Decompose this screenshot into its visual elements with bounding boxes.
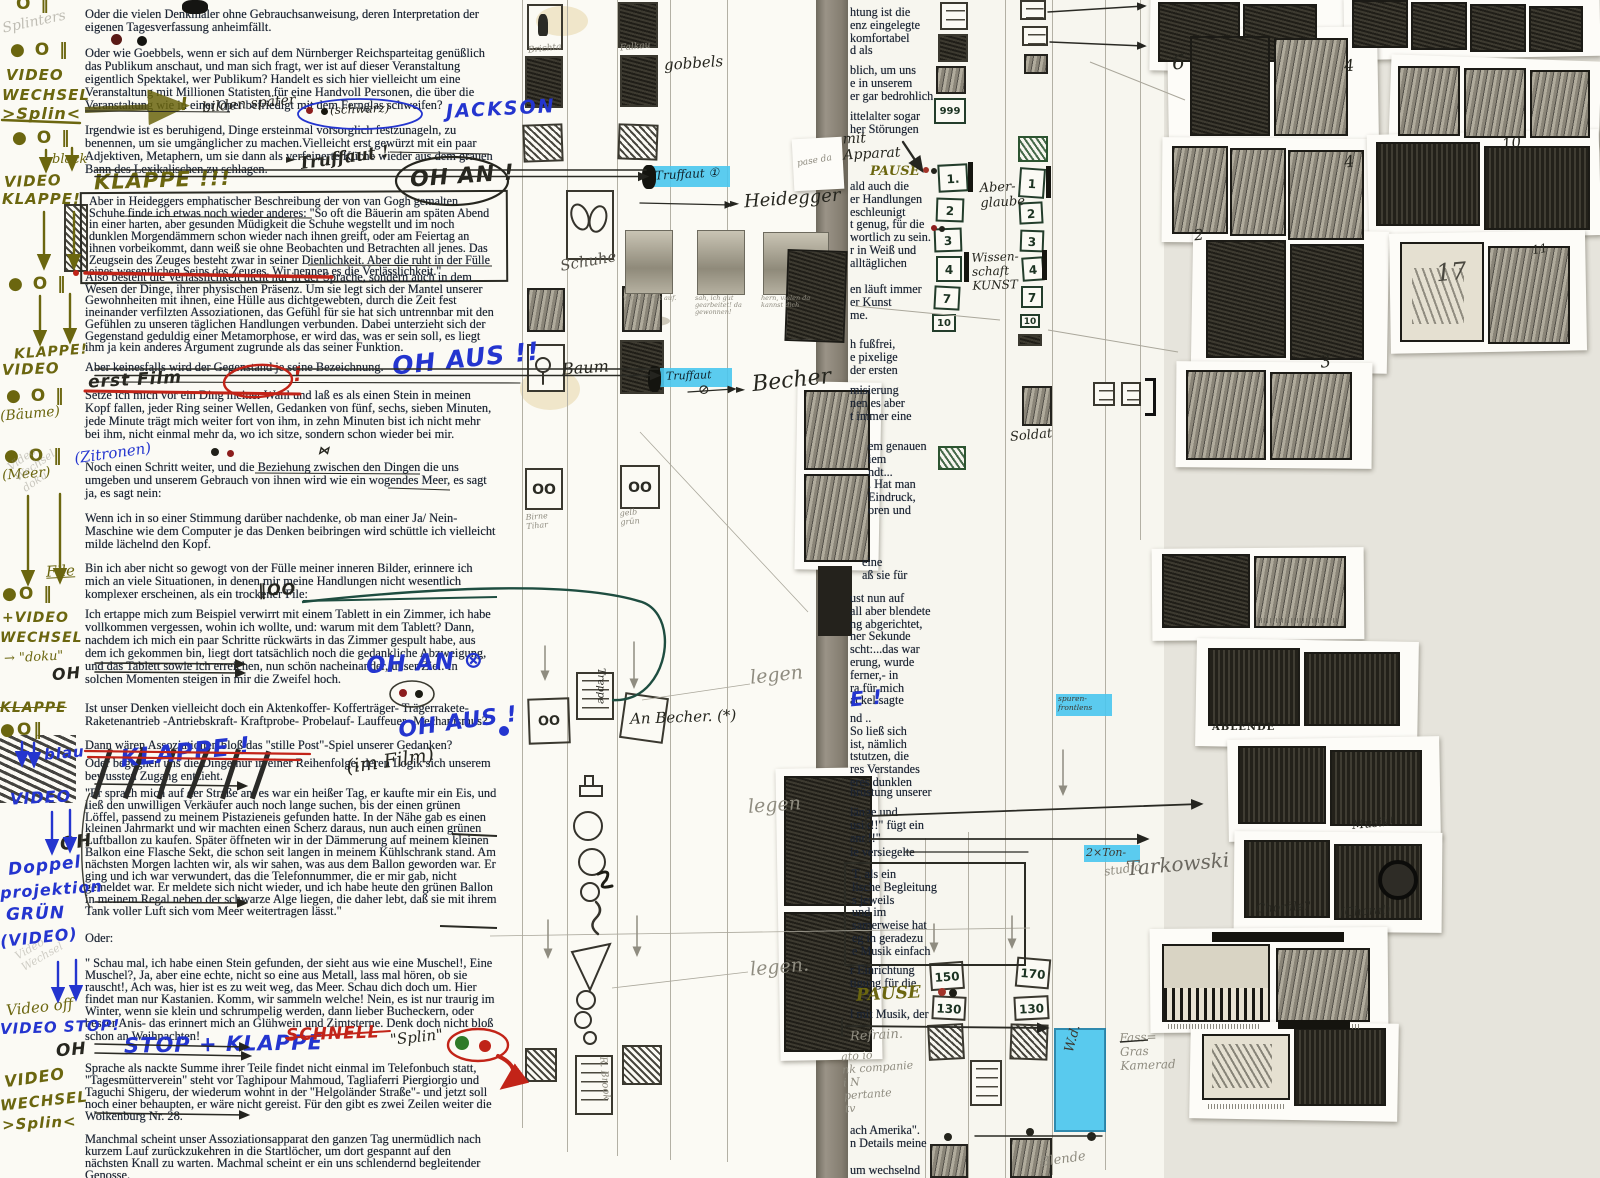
- thumb-panel: [1398, 66, 1460, 136]
- label-fass-gras: Fass= Gras Kamerad: [1119, 1029, 1176, 1073]
- track-line: [522, 0, 523, 1128]
- black-dot: [1087, 1132, 1096, 1141]
- note-klappe-3: KLAPPE !!!: [94, 166, 232, 195]
- thumb-panel: [1270, 372, 1352, 460]
- paragraph: Oder die vielen Denkmäler ohne Gebrauchs…: [85, 8, 497, 34]
- caption-scribble: [1168, 1024, 1260, 1029]
- label-aberglaube: Aber- glaube: [979, 179, 1025, 211]
- note-mit-apparat: mit Apparat: [842, 129, 901, 164]
- thumb-panel: [1352, 0, 1408, 48]
- note-schnell: SCHNELL: [286, 1022, 380, 1045]
- thumb-panel: [1530, 70, 1590, 138]
- red-dot: [306, 107, 313, 114]
- track-line: [567, 0, 568, 1152]
- paragraph: Oder:: [85, 932, 497, 945]
- thumb-panel-dog: [1484, 146, 1590, 230]
- r-text-block: em genauen iem ndt... . Hat man Eindruck…: [868, 440, 1008, 517]
- red-dot: [931, 225, 937, 231]
- red-dot: [938, 988, 946, 996]
- label-gelb-gruen: gelb grün: [619, 507, 640, 527]
- r-text-block: misierung nen es aber t immer eine: [850, 384, 1028, 422]
- track-box: [970, 1060, 1002, 1106]
- moon-circle: [1378, 860, 1418, 900]
- margin-note-black: black: [52, 152, 87, 167]
- storyboard-box: [927, 1023, 965, 1061]
- black-dot: [931, 168, 937, 174]
- excl-mark-red: !: [292, 362, 304, 387]
- storyboard-box: [522, 123, 563, 162]
- r-text-block-boxed: T, als ein lische Begleitung s jeweils u…: [852, 868, 1030, 958]
- paragraph-ballon-quote: "Er sprach mich auf der Straße an, es wa…: [85, 788, 497, 918]
- caption-ablende: ABLENDE: [1212, 722, 1275, 733]
- r-text-block: eine aß sie für: [862, 556, 1040, 582]
- ink-blob: [648, 366, 661, 392]
- red-dot: [399, 689, 407, 697]
- ink-bar: [1278, 1020, 1350, 1029]
- paragraph: Noch einen Schritt weiter, und die Bezie…: [85, 461, 497, 500]
- note-refrain: Refrain.: [850, 1027, 904, 1045]
- margin-note-video: VIDEO: [6, 66, 64, 84]
- margin-note-oh: OH: [59, 830, 94, 855]
- r-text-block: ach Amerika". n Details meine: [850, 1124, 1028, 1150]
- margin-note-wechsel: WECHSEL: [0, 630, 83, 646]
- note-pause-1: PAUSE: [870, 164, 920, 179]
- thumb-panel: [1162, 554, 1250, 628]
- thumb-number-4: 4: [1343, 56, 1355, 76]
- track-box: [1121, 382, 1141, 406]
- eye-take-glyph: ●O‖: [0, 720, 44, 740]
- r-text-block: blich, um uns e in unserem er gar bedroh…: [850, 64, 1028, 102]
- storyboard-box: [527, 288, 565, 332]
- track-line: [1105, 0, 1106, 1170]
- paragraph: Setze ich mich vor ein Ding meiner Wahl …: [85, 389, 497, 441]
- r-text-block: um wechselnd: [850, 1164, 1028, 1177]
- thumb-panel: [1276, 948, 1370, 1022]
- thumb-panel: [1411, 2, 1467, 50]
- note-scribbles: ato io nk companie i N pertante tv: [841, 1046, 917, 1116]
- thumb-panel: [1186, 370, 1266, 460]
- r-text-block: htung ist die enz eingelegte komfortabel…: [850, 6, 1028, 57]
- thumb-panel: [1330, 750, 1422, 826]
- tri-glyph: ►: [286, 152, 295, 166]
- label-treppe: Treppe: [595, 668, 606, 704]
- ink-blob: [182, 0, 208, 14]
- note-schwarz: (schwarz): [330, 101, 390, 117]
- eye-take-glyph: ● O ‖: [10, 40, 70, 60]
- r-text-block: nd .. So ließ sich ist, nämlich tstutzen…: [850, 712, 1028, 789]
- thumb-number-6: 6: [1171, 49, 1186, 74]
- eye-take-glyph: ● O ‖: [12, 128, 72, 148]
- ink-bracket: [1145, 378, 1156, 416]
- thumb-panel: [1206, 240, 1286, 358]
- r-text-block: h fußfrei, e pixelige der ersten: [850, 338, 1028, 376]
- red-dot: [111, 34, 122, 45]
- caption-scribble: [1258, 618, 1338, 623]
- thumb-panel: [1294, 1028, 1386, 1106]
- thumb-number-17: 17: [1435, 257, 1468, 288]
- red-dot: [227, 450, 234, 457]
- oo-box: OO: [525, 468, 563, 510]
- margin-note-doku: → "doku": [4, 648, 64, 666]
- red-dot: [479, 1040, 491, 1052]
- track-line: [617, 0, 618, 1156]
- paragraph: Manchmal scheint unser Assoziationsappar…: [85, 1133, 497, 1178]
- margin-note-splin: >Splin<: [2, 104, 81, 123]
- thumb-panel: [1290, 244, 1364, 360]
- note-pause-2: PAUSE: [856, 982, 922, 1005]
- note-e: E !: [849, 685, 884, 712]
- margin-note-video: +VIDEO: [2, 610, 69, 626]
- track-line: [1052, 0, 1053, 1175]
- margin-note-video: VIDEO: [10, 786, 72, 808]
- paragraph-heidegger-quote: Aber in Heideggers emphatischer Beschrei…: [89, 196, 493, 278]
- margin-note-klappe: KLAPPE!: [2, 190, 81, 208]
- photo-frame: [625, 230, 673, 294]
- thumb-panel: [1172, 146, 1228, 234]
- thumb-panel-dog: [1376, 142, 1480, 226]
- thumb-number-10: 10: [1501, 133, 1522, 153]
- red-dot: [923, 167, 929, 173]
- green-hatch-box: [1018, 136, 1048, 162]
- black-dot: [944, 1133, 952, 1141]
- caption-chorale: Choräle?: [1256, 899, 1311, 916]
- margin-note-video: VIDEO: [2, 359, 60, 379]
- margin-note-oh: OH: [55, 1039, 87, 1062]
- ink-bracket: [1042, 250, 1047, 280]
- scanned-script-page: O ‖ Splinters ● O ‖ VIDEO WECHSEL >Splin…: [0, 0, 1600, 1178]
- track-box: [1093, 382, 1115, 406]
- thumb-panel: [1238, 746, 1326, 824]
- storyboard-box: [620, 55, 658, 107]
- storyboard-box: [617, 123, 658, 160]
- margin-note-wechsel: WECHSEL: [2, 86, 90, 104]
- margin-note-oh: OH: [51, 663, 82, 684]
- black-dot: [415, 690, 423, 698]
- oslash-glyph: ⊘: [698, 382, 710, 398]
- black-dot: [137, 36, 147, 46]
- storyboard-box: [1009, 1023, 1048, 1060]
- label-baum: Baum: [561, 356, 609, 378]
- paragraph: Wenn ich in so einer Stimmung darüber na…: [85, 512, 497, 551]
- margin-note-file: File: [46, 561, 76, 580]
- r-text-block: l mit Musik, der: [850, 1008, 1028, 1021]
- storyboard-box: [622, 1045, 662, 1085]
- excl-mark: !: [179, 94, 190, 116]
- thumb-panel: [1464, 68, 1526, 138]
- label-an-becher: An Becher. (*): [630, 706, 737, 728]
- pencil-figure-scribble: [1212, 1044, 1272, 1088]
- black-dot: [949, 989, 957, 997]
- tri-glyph: ►: [736, 382, 745, 396]
- black-dot: [211, 448, 219, 456]
- black-dot: [321, 108, 328, 115]
- oo-box: OO: [620, 465, 660, 509]
- piano-keys: [1164, 988, 1268, 1020]
- red-dot: [73, 270, 79, 276]
- highlight-wd-block: [1054, 1028, 1106, 1132]
- thumb-panel: [1488, 246, 1570, 344]
- eye-take-glyph: ●O ‖: [2, 584, 54, 604]
- caption-choral: (Choral): [1340, 903, 1391, 920]
- label-legen-2: legen: [747, 792, 801, 818]
- file-glyph: ‖OO: [258, 579, 297, 599]
- thumb-panel: [1274, 38, 1348, 136]
- photo-caption: sah, ich gut gearbeitet! da gewonnen!: [695, 295, 753, 316]
- margin-note-klappe-struck: KLAPPE: [0, 700, 67, 716]
- photo-frame: [697, 230, 745, 295]
- r-text-block: hrüstung unserer: [850, 786, 1028, 799]
- tri-glyph: ►: [730, 196, 739, 210]
- ink-bracket: [1046, 166, 1051, 198]
- label-2xton: 2×Ton-: [1086, 846, 1126, 859]
- margin-note-video: VIDEO: [4, 171, 62, 191]
- pot-sketch: [804, 474, 870, 562]
- storyboard-box: [525, 1048, 557, 1082]
- black-dot: [939, 226, 945, 232]
- thumb-panel: [1304, 652, 1400, 726]
- r-text-block: länge und usik!!" fügt ein ann!!": [850, 806, 1028, 844]
- photo-caption: wo für grün auf.: [623, 295, 681, 302]
- margin-note-gruen: GRÜN: [6, 903, 66, 925]
- black-dot: [1026, 1128, 1034, 1136]
- ink-bar: [1212, 932, 1344, 942]
- blue-dot: [499, 726, 509, 736]
- margin-note-blau: blau: [43, 742, 85, 763]
- sketch-figure: [538, 14, 548, 36]
- thumb-panel: [1208, 648, 1300, 726]
- pedestal-sketch: [818, 566, 852, 636]
- eye-take-glyph: ● O ‖: [8, 274, 68, 294]
- thumb-panel: [1470, 4, 1526, 52]
- oo-scrawl-box: OO: [527, 697, 571, 744]
- caption-scribble: [1208, 1104, 1286, 1109]
- label-truffaut-2: Truffaut: [666, 368, 712, 383]
- label-birne: Birne Tihar: [525, 511, 549, 531]
- r-text-block: ie versiegelte: [850, 846, 1028, 859]
- thumb-panel: [1529, 6, 1583, 52]
- thumb-panel: [1190, 36, 1270, 136]
- thumb-panel: [1230, 148, 1286, 236]
- bowtie-glyph: ⋈: [318, 444, 329, 457]
- paragraph: Sprache als nackte Summe ihrer Teile fin…: [85, 1062, 497, 1122]
- thumb-number-11: 11: [1531, 241, 1548, 257]
- photo-caption: hern, vielen da kannst dich: [761, 295, 823, 309]
- paragraph: Also besteht die Verlässlichkeit nicht n…: [85, 272, 497, 354]
- track-line: [1140, 0, 1141, 540]
- green-dot: [455, 1036, 469, 1050]
- track-line: [1005, 0, 1006, 1178]
- label-cyan-note: spuren- frontlens: [1058, 694, 1092, 712]
- thumb-number-2: 2: [1193, 226, 1204, 245]
- label-wissenschaft: Wissen- schaft KUNST: [971, 249, 1020, 293]
